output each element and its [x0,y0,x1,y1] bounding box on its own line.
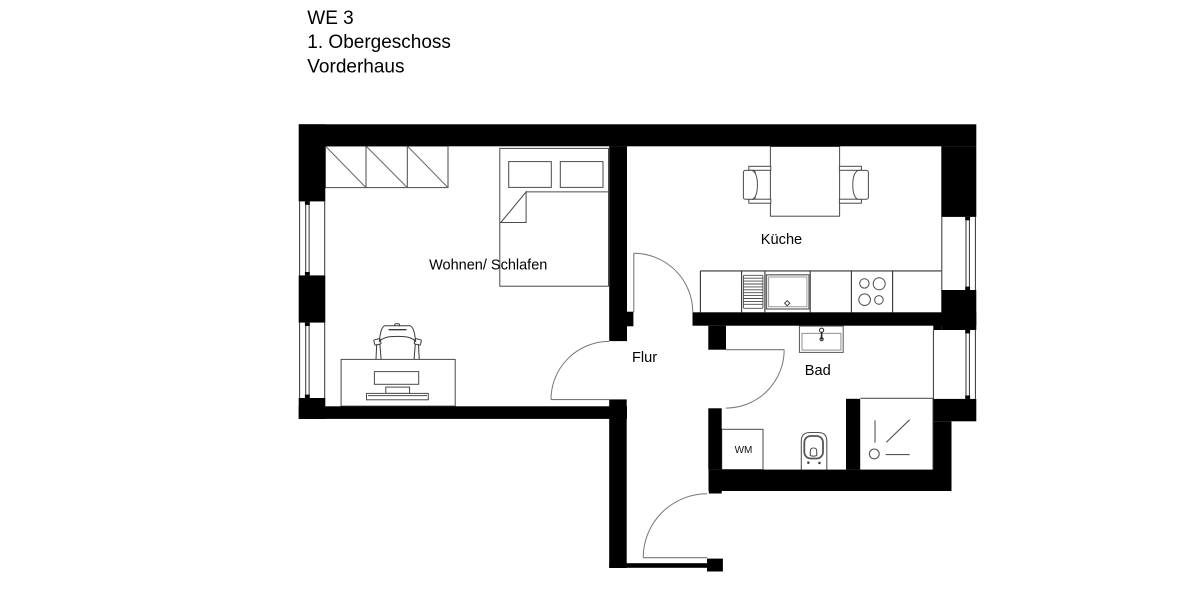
svg-text:Küche: Küche [761,232,802,248]
svg-text:Wohnen/ Schlafen: Wohnen/ Schlafen [429,258,547,274]
svg-text:1. Obergeschoss: 1. Obergeschoss [307,32,451,53]
svg-text:Flur: Flur [632,350,657,366]
svg-text:WM: WM [735,445,753,456]
svg-text:Vorderhaus: Vorderhaus [307,57,404,78]
svg-text:WE 3: WE 3 [307,8,353,29]
svg-text:Bad: Bad [805,363,831,379]
